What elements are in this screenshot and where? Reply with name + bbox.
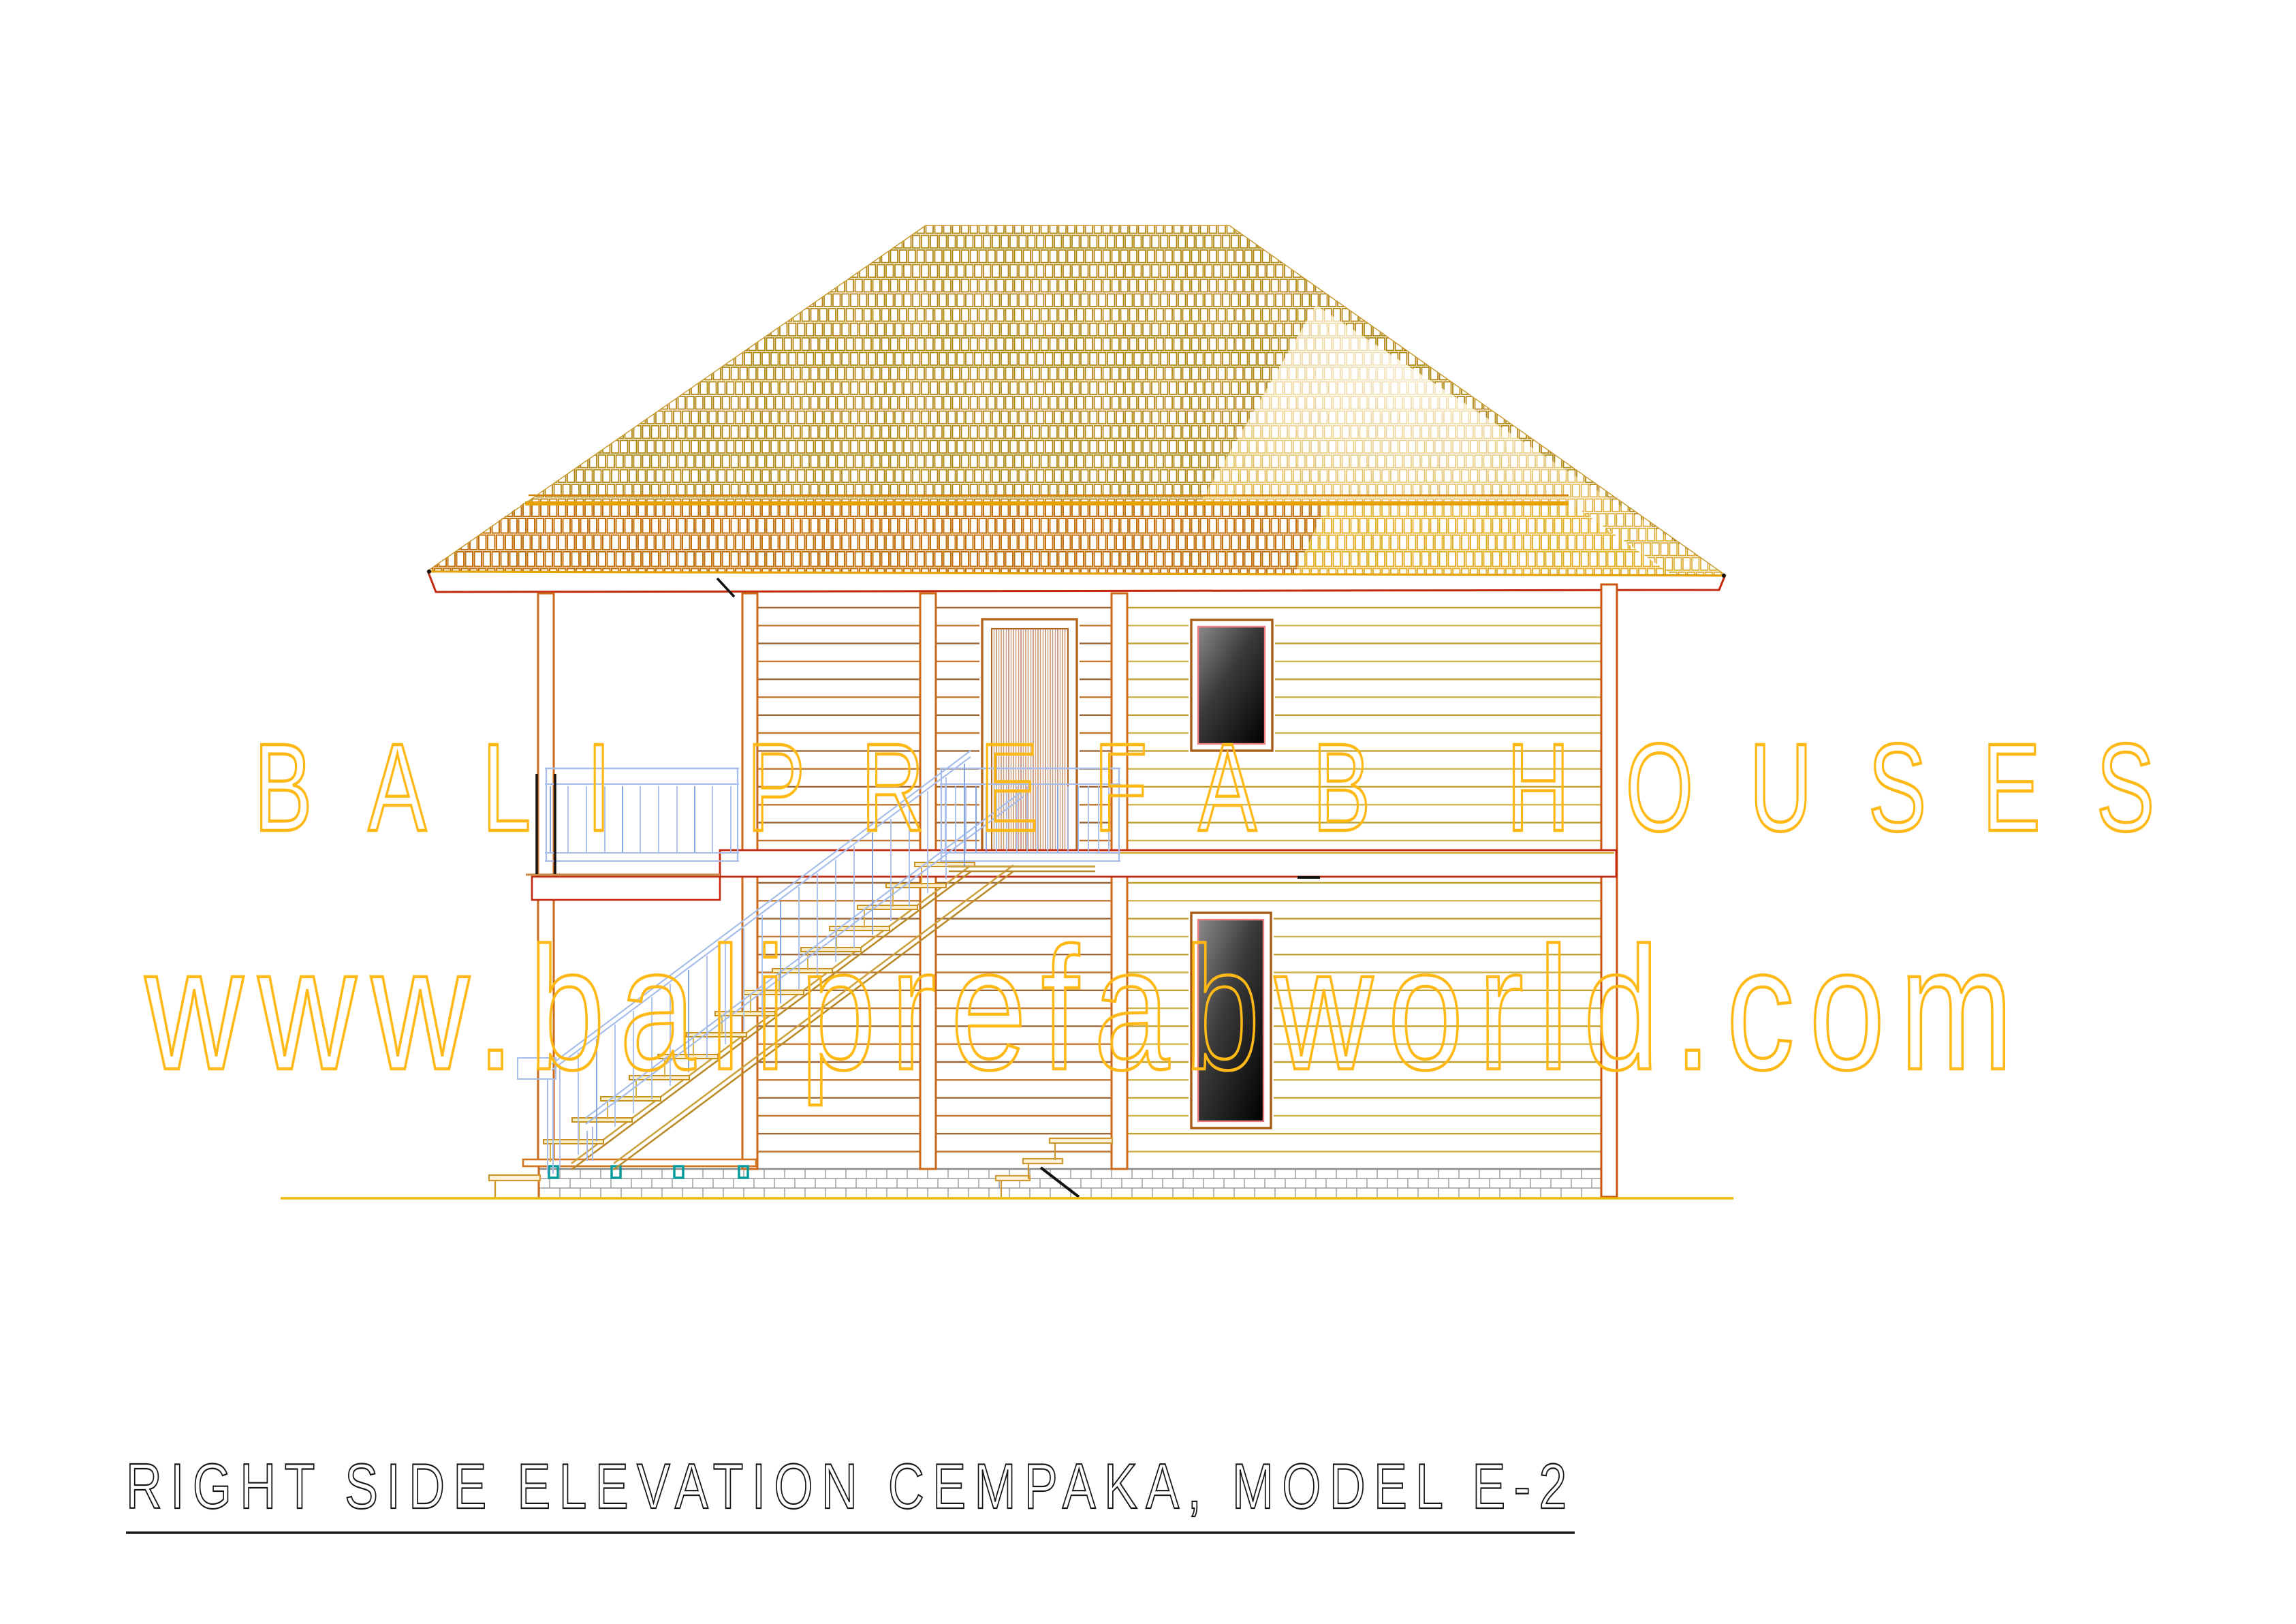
svg-text:www.baliprefabworld.com: www.baliprefabworld.com	[144, 911, 2013, 1106]
